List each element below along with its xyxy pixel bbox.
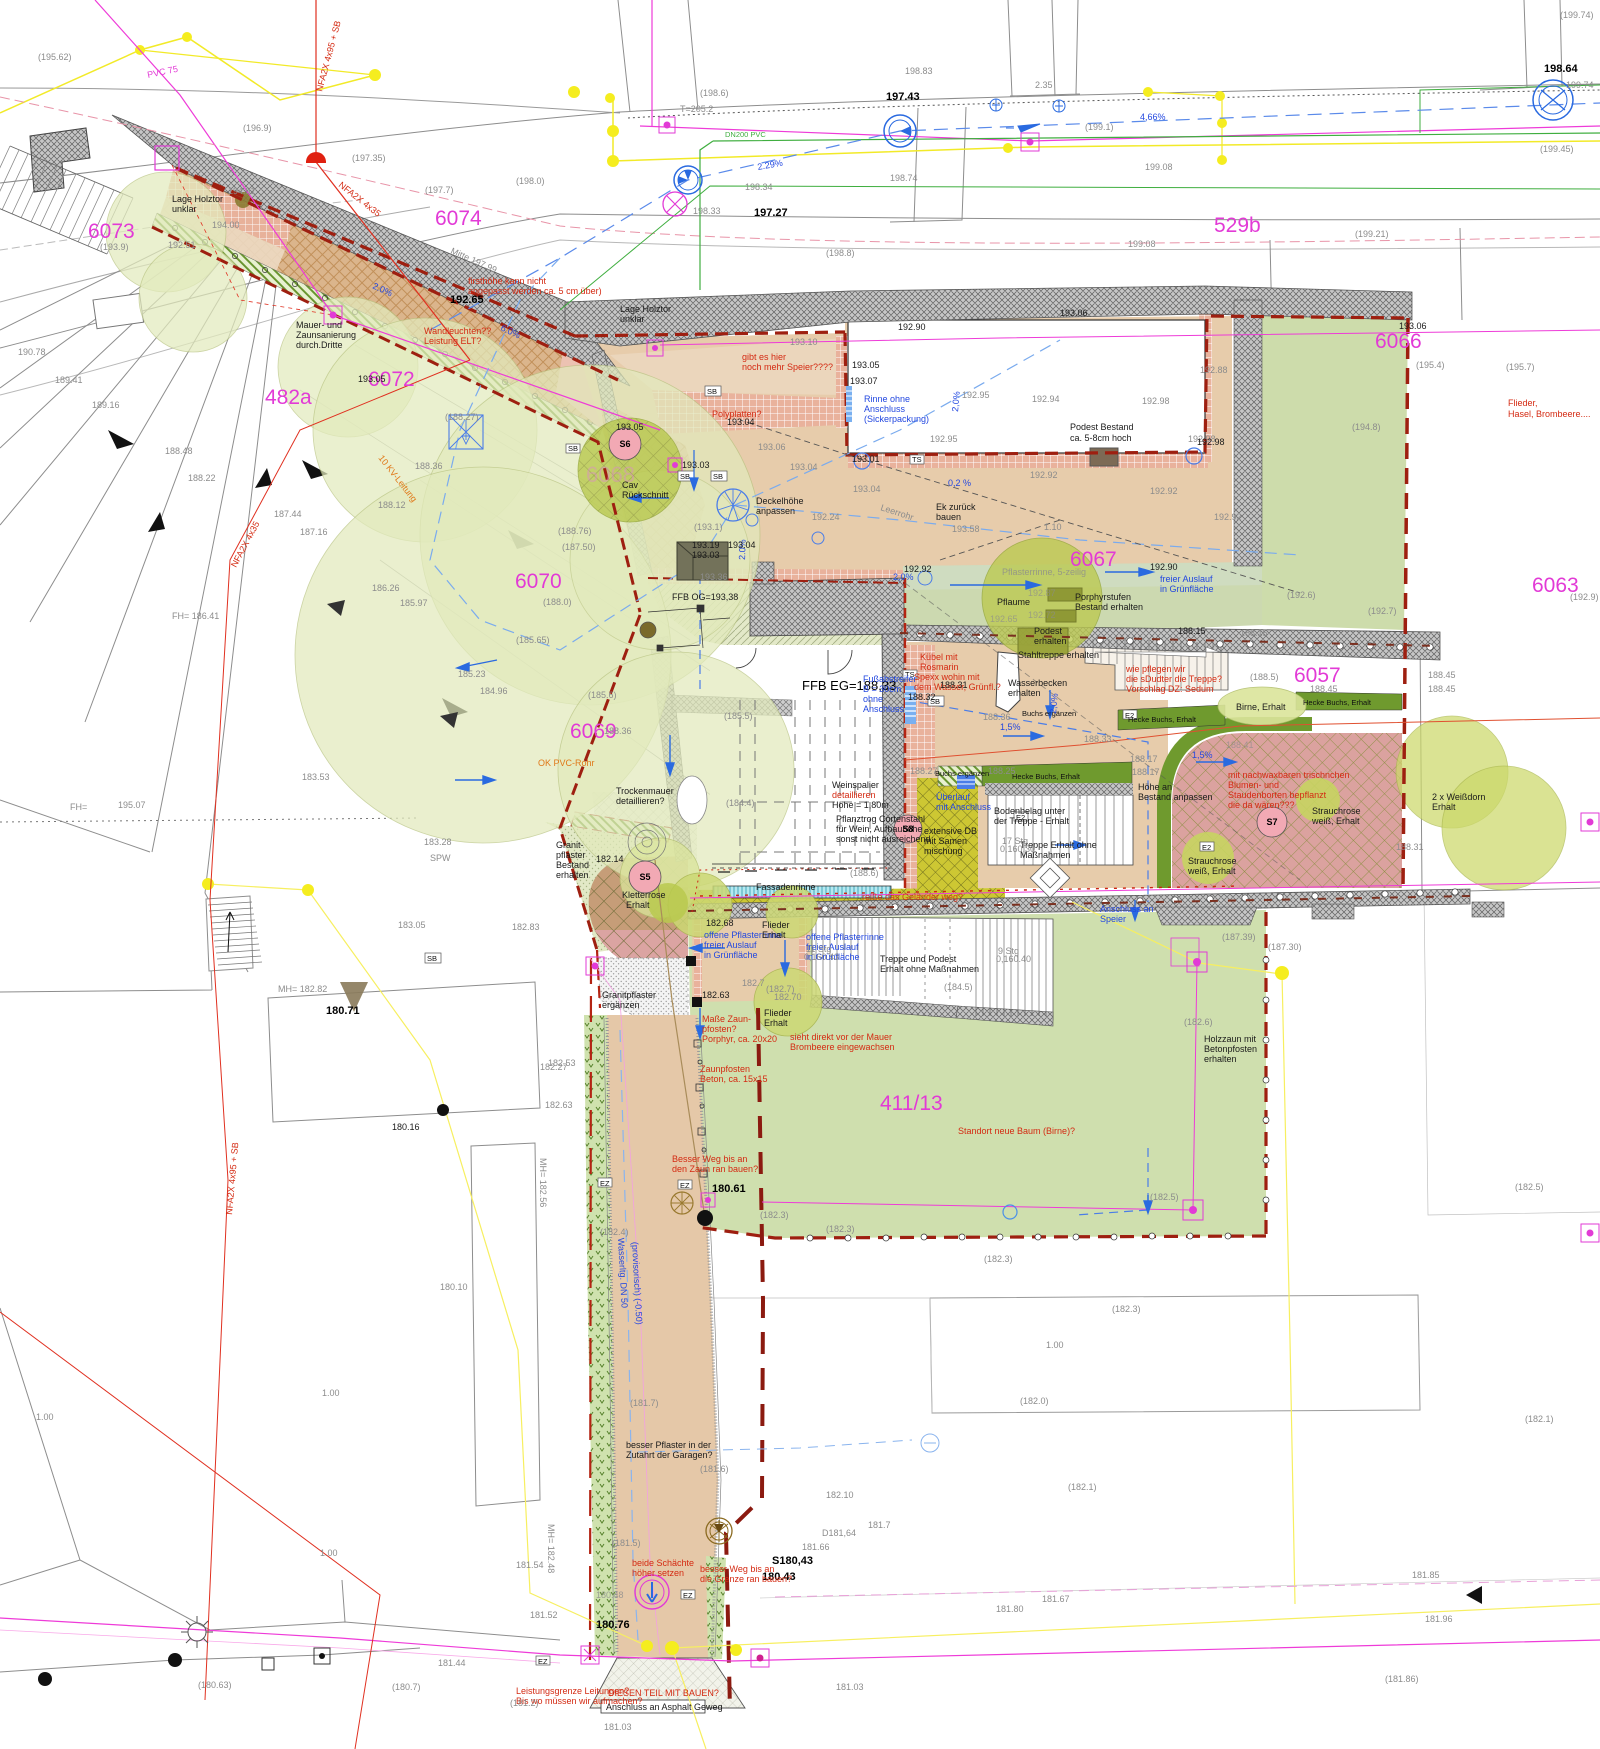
svg-text:(198.0): (198.0) (516, 176, 545, 186)
svg-text:Fußabstreifer: Fußabstreifer (863, 674, 917, 684)
svg-text:180.61: 180.61 (712, 1183, 746, 1195)
svg-text:(182.3): (182.3) (1112, 1304, 1141, 1314)
svg-text:181.54: 181.54 (516, 1560, 544, 1570)
svg-text:Hasel, Brombeere....: Hasel, Brombeere.... (1508, 409, 1591, 419)
svg-text:188.45: 188.45 (1428, 684, 1456, 694)
svg-text:in Grünfläche: in Grünfläche (1160, 584, 1214, 594)
svg-text:Anschluss an Asphalt Geweg: Anschluss an Asphalt Geweg (606, 1702, 723, 1712)
svg-text:Bestand: Bestand (556, 860, 589, 870)
svg-text:482a: 482a (265, 386, 312, 409)
svg-text:199.08: 199.08 (1145, 162, 1173, 172)
svg-text:(192.6): (192.6) (1287, 590, 1316, 600)
svg-text:0,2 %: 0,2 % (948, 478, 971, 488)
svg-text:Ek zurück: Ek zurück (936, 502, 976, 512)
svg-text:188.15: 188.15 (1178, 626, 1206, 636)
svg-text:188.25: 188.25 (988, 766, 1016, 776)
svg-text:Pflaume: Pflaume (997, 597, 1030, 607)
svg-text:S180,43: S180,43 (772, 1555, 813, 1567)
svg-text:192.90: 192.90 (1150, 562, 1178, 572)
svg-text:(Sickerpackung): (Sickerpackung) (864, 414, 929, 424)
svg-text:für Wein, Aufbauhöhe: für Wein, Aufbauhöhe (836, 824, 922, 834)
svg-text:188.33: 188.33 (1084, 734, 1112, 744)
svg-text:Besser Weg bis an: Besser Weg bis an (672, 1154, 747, 1164)
svg-text:Porphyr, ca. 20x20: Porphyr, ca. 20x20 (702, 1034, 777, 1044)
svg-text:188.32: 188.32 (908, 692, 936, 702)
svg-text:(182.3): (182.3) (760, 1210, 789, 1220)
svg-text:Beton, ca. 15x15: Beton, ca. 15x15 (700, 1074, 768, 1084)
svg-text:Zutahrt der Garagen?: Zutahrt der Garagen? (626, 1450, 713, 1460)
svg-text:S7: S7 (1266, 817, 1277, 827)
svg-text:Standort neue Baum (Birne)?: Standort neue Baum (Birne)? (958, 1126, 1075, 1136)
svg-text:Flieder,: Flieder, (1508, 398, 1538, 408)
svg-text:Bestand anpassen: Bestand anpassen (1138, 792, 1213, 802)
svg-text:192.92: 192.92 (1214, 512, 1242, 522)
svg-text:Blumen- und: Blumen- und (1228, 780, 1279, 790)
svg-text:193.19: 193.19 (692, 540, 720, 550)
svg-text:192.87: 192.87 (1028, 588, 1056, 598)
svg-text:192.65: 192.65 (450, 294, 484, 306)
svg-text:Erhalt ohne Maßnahmen: Erhalt ohne Maßnahmen (880, 964, 979, 974)
svg-text:weiß, Erhalt: weiß, Erhalt (1311, 816, 1360, 826)
svg-text:besser Weg bis an: besser Weg bis an (700, 1564, 774, 1574)
svg-text:181.03: 181.03 (836, 1682, 864, 1692)
svg-text:Pflasterrinne, 5-zeilig: Pflasterrinne, 5-zeilig (1002, 567, 1086, 577)
svg-text:T=205.2: T=205.2 (680, 104, 713, 114)
svg-text:Holzzaun mit: Holzzaun mit (1204, 1034, 1257, 1044)
svg-text:pflaster: pflaster (556, 850, 586, 860)
svg-text:besser Pflaster in der: besser Pflaster in der (626, 1440, 711, 1450)
svg-text:185.23: 185.23 (458, 669, 486, 679)
svg-text:Zaunpfosten: Zaunpfosten (700, 1064, 750, 1074)
svg-text:180.16: 180.16 (392, 1122, 420, 1132)
svg-text:in Grünfläche: in Grünfläche (704, 950, 758, 960)
svg-text:(192.7): (192.7) (1368, 606, 1397, 616)
svg-text:MH= 182.48: MH= 182.48 (546, 1524, 556, 1573)
svg-text:183.28: 183.28 (424, 837, 452, 847)
svg-text:0,160.30: 0,160.30 (1000, 844, 1035, 854)
svg-text:182.83: 182.83 (512, 922, 540, 932)
svg-text:EZ: EZ (600, 1179, 610, 1188)
svg-text:Speier: Speier (1100, 914, 1126, 924)
svg-text:SPW: SPW (430, 853, 451, 863)
svg-text:(198.8): (198.8) (826, 248, 855, 258)
svg-text:188.17: 188.17 (1132, 767, 1160, 777)
svg-text:(195.7): (195.7) (1506, 362, 1535, 372)
svg-text:(182.3): (182.3) (826, 1224, 855, 1234)
svg-text:2.35: 2.35 (1035, 80, 1053, 90)
svg-text:185.97: 185.97 (400, 598, 428, 608)
svg-text:193.04: 193.04 (728, 540, 756, 550)
svg-text:188.45: 188.45 (1310, 684, 1338, 694)
svg-text:Rosmarin: Rosmarin (920, 662, 959, 672)
svg-text:freier Auslauf: freier Auslauf (704, 940, 757, 950)
svg-text:193.05: 193.05 (852, 360, 880, 370)
svg-text:(193.9): (193.9) (100, 242, 129, 252)
svg-text:0,160.40: 0,160.40 (996, 954, 1031, 964)
svg-text:Erhalt: Erhalt (626, 900, 650, 910)
svg-text:die Grenze ran bauen?: die Grenze ran bauen? (700, 1574, 792, 1584)
svg-text:192.92: 192.92 (1030, 470, 1058, 480)
svg-text:182.63: 182.63 (545, 1100, 573, 1110)
svg-text:noch mehr Speier????: noch mehr Speier???? (742, 362, 833, 372)
svg-text:193.04: 193.04 (790, 462, 818, 472)
svg-text:198.64: 198.64 (1544, 63, 1579, 75)
svg-text:Erhalt: Erhalt (764, 1018, 788, 1028)
svg-text:(196.9): (196.9) (243, 123, 272, 133)
svg-text:Deckelhöhe: Deckelhöhe (756, 496, 804, 506)
svg-text:Rückschnitt: Rückschnitt (622, 490, 669, 500)
svg-text:197.27: 197.27 (754, 207, 788, 219)
svg-text:(199.74): (199.74) (1560, 10, 1594, 20)
svg-text:(182.3): (182.3) (984, 1254, 1013, 1264)
svg-text:Erhalt: Erhalt (762, 930, 786, 940)
svg-text:sonst nicht ausreichend: sonst nicht ausreichend (836, 834, 931, 844)
svg-text:Anschluss: Anschluss (863, 704, 905, 714)
svg-text:181.96: 181.96 (1425, 1614, 1453, 1624)
svg-text:(199.1): (199.1) (1085, 122, 1114, 132)
svg-text:Bodenbelag unter: Bodenbelag unter (994, 806, 1065, 816)
svg-text:pfosten?: pfosten? (702, 1024, 737, 1034)
svg-text:Zaunsanierung: Zaunsanierung (296, 330, 356, 340)
svg-text:192.95: 192.95 (930, 434, 958, 444)
svg-text:182.68: 182.68 (706, 918, 734, 928)
svg-text:(180.7): (180.7) (392, 1682, 421, 1692)
svg-text:193.05: 193.05 (616, 422, 644, 432)
svg-text:Cav: Cav (622, 480, 639, 490)
svg-text:1.10: 1.10 (1044, 522, 1062, 532)
svg-text:erhalten: erhalten (1008, 688, 1041, 698)
svg-text:0,160.43: 0,160.43 (804, 952, 839, 962)
svg-text:(180.63): (180.63) (198, 1680, 232, 1690)
svg-text:Treppe und Podest: Treppe und Podest (880, 954, 957, 964)
svg-text:181.7: 181.7 (868, 1520, 891, 1530)
svg-text:193.03: 193.03 (692, 550, 720, 560)
svg-text:193.06: 193.06 (1060, 308, 1088, 318)
svg-text:erhalten: erhalten (556, 870, 589, 880)
svg-text:6073: 6073 (88, 220, 135, 243)
svg-text:192.90: 192.90 (898, 322, 926, 332)
svg-text:182.63: 182.63 (702, 990, 730, 1000)
svg-text:1.00: 1.00 (322, 1388, 340, 1398)
svg-text:(182.5): (182.5) (1515, 1182, 1544, 1192)
svg-text:TS: TS (912, 455, 922, 464)
svg-text:(182.6): (182.6) (1184, 1017, 1213, 1027)
svg-text:Bestand erhalten: Bestand erhalten (1075, 602, 1143, 612)
svg-text:Stahltreppe erhalten: Stahltreppe erhalten (1018, 650, 1099, 660)
svg-text:(181.86): (181.86) (1385, 1674, 1419, 1684)
svg-text:(197.35): (197.35) (352, 153, 386, 163)
svg-text:(199.45): (199.45) (1540, 144, 1574, 154)
svg-text:192.72: 192.72 (1028, 610, 1056, 620)
svg-text:Erhalt: Erhalt (1432, 802, 1456, 812)
svg-text:offene Pflasterrinne: offene Pflasterrinne (806, 932, 884, 942)
svg-text:193.01: 193.01 (852, 454, 880, 464)
svg-text:192.24: 192.24 (812, 512, 840, 522)
svg-text:unklar: unklar (620, 314, 645, 324)
svg-text:188.31: 188.31 (1396, 842, 1424, 852)
svg-text:193.05: 193.05 (358, 374, 386, 384)
svg-text:188.31: 188.31 (940, 680, 968, 690)
svg-text:198.74: 198.74 (890, 173, 918, 183)
svg-text:188.36: 188.36 (983, 712, 1011, 722)
svg-text:gibt es hier: gibt es hier (742, 352, 786, 362)
svg-text:194.91: 194.91 (228, 186, 256, 196)
svg-text:S5: S5 (639, 872, 650, 882)
svg-text:mit nachwaxbaren trischnchen: mit nachwaxbaren trischnchen (1228, 770, 1350, 780)
svg-text:190.78: 190.78 (18, 347, 46, 357)
svg-text:sieht direkt vor der Mauer: sieht direkt vor der Mauer (790, 1032, 892, 1042)
svg-text:198.34: 198.34 (745, 182, 773, 192)
svg-text:193.06: 193.06 (758, 442, 786, 452)
svg-text:198.33: 198.33 (693, 206, 721, 216)
svg-text:193.04: 193.04 (853, 484, 881, 494)
svg-text:193.06: 193.06 (1399, 321, 1427, 331)
svg-text:Lage Holztor: Lage Holztor (172, 194, 223, 204)
svg-text:(184.5): (184.5) (944, 982, 973, 992)
svg-text:extensive DB: extensive DB (924, 826, 977, 836)
svg-text:(181.7): (181.7) (630, 1398, 659, 1408)
svg-text:199.74: 199.74 (1566, 80, 1594, 90)
svg-text:(188.6): (188.6) (850, 868, 879, 878)
svg-text:1.00: 1.00 (36, 1412, 54, 1422)
svg-text:SB: SB (568, 444, 578, 453)
svg-text:411/13: 411/13 (880, 1092, 943, 1115)
svg-text:193.07: 193.07 (850, 376, 878, 386)
svg-text:183.05: 183.05 (398, 920, 426, 930)
svg-text:180.10: 180.10 (440, 1282, 468, 1292)
svg-text:192.98: 192.98 (1197, 437, 1225, 447)
svg-text:189.16: 189.16 (92, 400, 120, 410)
svg-text:188.36: 188.36 (415, 461, 443, 471)
svg-text:193.58: 193.58 (952, 524, 980, 534)
svg-text:Wandleuchten??: Wandleuchten?? (424, 326, 491, 336)
svg-text:182.70: 182.70 (774, 992, 802, 1002)
svg-text:181.66: 181.66 (802, 1542, 830, 1552)
svg-text:(199.21): (199.21) (1355, 229, 1389, 239)
svg-text:Strauchrose: Strauchrose (1188, 856, 1237, 866)
svg-text:193.10: 193.10 (790, 337, 818, 347)
svg-text:(198.6): (198.6) (700, 88, 729, 98)
svg-text:182.14: 182.14 (596, 854, 624, 864)
svg-text:181.80: 181.80 (996, 1604, 1024, 1614)
svg-text:Pflanztrog Cortenstahl: Pflanztrog Cortenstahl (836, 814, 925, 824)
svg-text:SB: SB (680, 472, 690, 481)
svg-text:188.48: 188.48 (165, 446, 193, 456)
svg-text:(188.27): (188.27) (445, 412, 479, 422)
svg-text:Betonpfosten: Betonpfosten (1204, 1044, 1257, 1054)
svg-text:durch.Dritte: durch.Dritte (296, 340, 343, 350)
svg-text:181.03: 181.03 (604, 1722, 632, 1732)
svg-text:bauen: bauen (936, 512, 961, 522)
svg-text:181.44: 181.44 (438, 1658, 466, 1668)
svg-text:(187.39): (187.39) (1222, 932, 1256, 942)
svg-text:SB: SB (707, 387, 717, 396)
svg-text:188.12: 188.12 (378, 500, 406, 510)
svg-text:OK PVC-Rohr: OK PVC-Rohr (538, 758, 595, 768)
svg-text:188.15: 188.15 (1240, 628, 1268, 638)
svg-text:188.36: 188.36 (604, 726, 632, 736)
svg-text:mischung: mischung (924, 846, 963, 856)
svg-text:EZ: EZ (680, 1181, 690, 1190)
svg-text:Mauer- und: Mauer- und (296, 320, 342, 330)
svg-text:(182.5): (182.5) (1150, 1192, 1179, 1202)
svg-text:angepasst werden ca. 5 cm über: angepasst werden ca. 5 cm über) (468, 286, 602, 296)
svg-text:4,66%: 4,66% (1140, 112, 1166, 122)
svg-text:Kübel mit: Kübel mit (920, 652, 958, 662)
svg-text:(182.1): (182.1) (1068, 1482, 1097, 1492)
svg-text:(188.76): (188.76) (558, 526, 592, 536)
svg-text:(182.1): (182.1) (1525, 1414, 1554, 1424)
svg-text:(184.4): (184.4) (726, 798, 755, 808)
svg-text:181.52: 181.52 (530, 1610, 558, 1620)
svg-text:Flieder: Flieder (762, 920, 790, 930)
svg-text:(197.7): (197.7) (425, 185, 454, 195)
svg-text:Leistung ELT?: Leistung ELT? (424, 336, 481, 346)
svg-text:wie pflegen wir: wie pflegen wir (1125, 664, 1186, 674)
svg-text:(181.6): (181.6) (700, 1464, 729, 1474)
svg-text:ergänzen: ergänzen (602, 1000, 640, 1010)
svg-text:195.07: 195.07 (118, 800, 146, 810)
svg-text:Birne, Erhalt: Birne, Erhalt (1236, 702, 1286, 712)
svg-text:mit Anschluss: mit Anschluss (936, 802, 992, 812)
svg-text:Anschluss: Anschluss (864, 404, 906, 414)
svg-text:1,5%: 1,5% (1192, 750, 1213, 760)
svg-text:Höhe an: Höhe an (1138, 782, 1172, 792)
svg-text:der Treppe - Erhalt: der Treppe - Erhalt (994, 816, 1070, 826)
svg-text:199:08: 199:08 (1128, 239, 1156, 249)
svg-text:(181.2): (181.2) (510, 1698, 539, 1708)
svg-text:183.53: 183.53 (302, 772, 330, 782)
svg-text:(185.65): (185.65) (516, 635, 550, 645)
svg-text:anpassen: anpassen (756, 506, 795, 516)
svg-text:(185.6): (185.6) (588, 690, 617, 700)
svg-text:beide Schächte: beide Schächte (632, 1558, 694, 1568)
svg-text:2 x Weißdorn: 2 x Weißdorn (1432, 792, 1485, 802)
svg-text:(195.62): (195.62) (38, 52, 72, 62)
svg-text:(195.4): (195.4) (1416, 360, 1445, 370)
svg-text:192.65: 192.65 (990, 614, 1018, 624)
svg-text:188.27: 188.27 (910, 766, 938, 776)
svg-text:182.10: 182.10 (826, 1490, 854, 1500)
svg-text:(188.5): (188.5) (1250, 672, 1279, 682)
svg-text:Überlauf: Überlauf (936, 792, 971, 802)
svg-text:Staudenborten bepflanzt: Staudenborten bepflanzt (1228, 790, 1327, 800)
svg-text:EZ: EZ (538, 1657, 548, 1666)
svg-text:Vorschlag DZ: Sedum: Vorschlag DZ: Sedum (1126, 684, 1214, 694)
svg-text:erhalten: erhalten (1034, 636, 1067, 646)
svg-text:194.00: 194.00 (212, 220, 240, 230)
svg-text:182.7: 182.7 (742, 978, 765, 988)
svg-text:198.83: 198.83 (905, 66, 933, 76)
svg-text:193.04: 193.04 (727, 417, 755, 427)
svg-text:DIESEN TEIL MIT BAUEN?: DIESEN TEIL MIT BAUEN? (608, 1688, 719, 1698)
svg-text:188.17: 188.17 (1130, 754, 1158, 764)
svg-text:(187.50): (187.50) (562, 542, 596, 552)
svg-text:reiße das Geländer weg?: reiße das Geländer weg? (862, 892, 963, 902)
svg-text:Hecke Buchs, Erhalt: Hecke Buchs, Erhalt (1303, 698, 1372, 707)
svg-text:SB: SB (427, 954, 437, 963)
svg-text:Lage Holztor: Lage Holztor (620, 304, 671, 314)
svg-text:1.00: 1.00 (320, 1548, 338, 1558)
svg-text:181.85: 181.85 (1412, 1570, 1440, 1580)
svg-text:529b: 529b (1214, 214, 1261, 237)
svg-text:Brombeere eingewachsen: Brombeere eingewachsen (790, 1042, 895, 1052)
svg-text:B = 30cm: B = 30cm (863, 684, 901, 694)
svg-text:weiß, Erhalt: weiß, Erhalt (1187, 866, 1236, 876)
svg-text:EZ: EZ (683, 1591, 693, 1600)
svg-text:(182.4): (182.4) (600, 1227, 629, 1237)
svg-text:höher setzen: höher setzen (632, 1568, 684, 1578)
svg-text:6074: 6074 (435, 207, 482, 230)
svg-text:(185.5): (185.5) (724, 711, 753, 721)
svg-text:180.48: 180.48 (596, 1590, 624, 1600)
svg-text:Podest: Podest (1034, 626, 1063, 636)
svg-text:192.88: 192.88 (1200, 365, 1228, 375)
svg-text:193.03: 193.03 (682, 460, 710, 470)
svg-text:FFB OG=193,38: FFB OG=193,38 (672, 592, 738, 602)
svg-text:Hecke Buchs, Erhalt: Hecke Buchs, Erhalt (1128, 715, 1197, 724)
svg-text:(188.0): (188.0) (543, 597, 572, 607)
svg-text:180.71: 180.71 (326, 1005, 360, 1017)
svg-text:1,5%: 1,5% (1000, 722, 1021, 732)
svg-text:188.22: 188.22 (188, 473, 216, 483)
svg-text:Granitpflaster: Granitpflaster (602, 990, 656, 1000)
svg-text:Kletterrose: Kletterrose (622, 890, 666, 900)
svg-text:(193.1): (193.1) (694, 522, 723, 532)
svg-text:erhalten: erhalten (1204, 1054, 1237, 1064)
svg-text:FH= 186.41: FH= 186.41 (172, 611, 219, 621)
svg-text:1.00: 1.00 (1046, 1340, 1064, 1350)
svg-text:192.95: 192.95 (962, 390, 990, 400)
svg-text:den Zaun ran bauen?: den Zaun ran bauen? (672, 1164, 758, 1174)
svg-text:197.43: 197.43 (886, 91, 920, 103)
svg-text:187.16: 187.16 (300, 527, 328, 537)
svg-text:Buchs ergänzen: Buchs ergänzen (935, 769, 989, 778)
svg-text:Anschluss an: Anschluss an (1100, 904, 1154, 914)
svg-text:188.41: 188.41 (1226, 740, 1254, 750)
svg-text:ohne: ohne (863, 694, 883, 704)
svg-text:184.96: 184.96 (480, 686, 508, 696)
svg-text:180.76: 180.76 (596, 1619, 630, 1631)
svg-text:(187.30): (187.30) (1268, 942, 1302, 952)
svg-text:DN200 PVC: DN200 PVC (725, 130, 766, 139)
svg-text:188.45: 188.45 (1428, 670, 1456, 680)
svg-text:Strauchrose: Strauchrose (1312, 806, 1361, 816)
svg-text:Wasserbecken: Wasserbecken (1008, 678, 1067, 688)
svg-text:192.92: 192.92 (904, 564, 932, 574)
svg-text:(181.5): (181.5) (612, 1538, 641, 1548)
svg-text:unklar: unklar (172, 204, 197, 214)
svg-text:192.94: 192.94 (1032, 394, 1060, 404)
svg-text:MH= 182.56: MH= 182.56 (538, 1158, 548, 1207)
svg-text:Porphyrstufen: Porphyrstufen (1075, 592, 1131, 602)
svg-text:SB: SB (713, 472, 723, 481)
svg-text:MH= 182.82: MH= 182.82 (278, 984, 327, 994)
svg-text:E2: E2 (1202, 843, 1211, 852)
svg-text:2,0%: 2,0% (1048, 693, 1060, 714)
svg-text:freier Auslauf: freier Auslauf (1160, 574, 1213, 584)
svg-text:Podest Bestand: Podest Bestand (1070, 422, 1134, 432)
svg-text:189.41: 189.41 (55, 375, 83, 385)
svg-text:(182.0): (182.0) (1020, 1396, 1049, 1406)
svg-text:(194.8): (194.8) (1352, 422, 1381, 432)
svg-text:detaillieren: detaillieren (832, 790, 876, 800)
svg-text:192.98: 192.98 (1142, 396, 1170, 406)
svg-text:181.67: 181.67 (1042, 1594, 1070, 1604)
svg-text:die sDudter die Treppe?: die sDudter die Treppe? (1126, 674, 1222, 684)
svg-text:2,0%: 2,0% (950, 391, 962, 412)
svg-text:ca. 5-8cm hoch: ca. 5-8cm hoch (1070, 433, 1132, 443)
